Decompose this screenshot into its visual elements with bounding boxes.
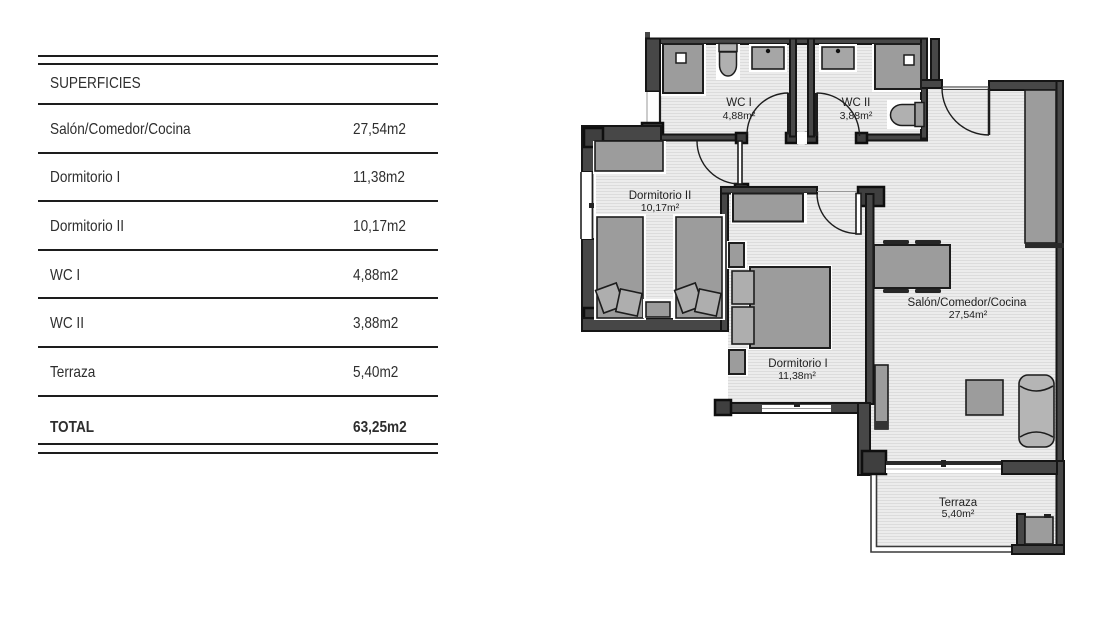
svg-text:3,88m²: 3,88m²: [840, 110, 873, 122]
svg-text:11,38m²: 11,38m²: [778, 370, 816, 382]
svg-text:Dormitorio I: Dormitorio I: [768, 358, 827, 370]
svg-text:WC I: WC I: [726, 97, 752, 109]
svg-text:10,17m²: 10,17m²: [641, 202, 680, 214]
svg-text:27,54m²: 27,54m²: [949, 309, 988, 321]
svg-text:Dormitorio II: Dormitorio II: [629, 190, 692, 202]
svg-text:5,40m²: 5,40m²: [942, 508, 975, 520]
svg-text:Salón/Comedor/Cocina: Salón/Comedor/Cocina: [908, 297, 1028, 309]
svg-text:WC II: WC II: [842, 97, 871, 109]
svg-text:4,88m²: 4,88m²: [723, 110, 756, 122]
